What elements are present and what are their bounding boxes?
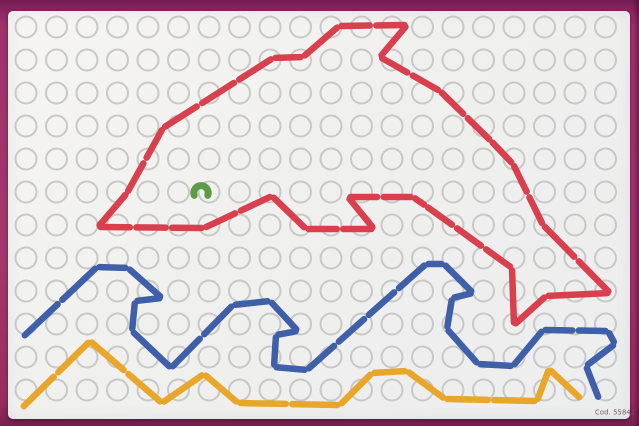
hole bbox=[321, 50, 342, 71]
hole bbox=[46, 248, 67, 269]
hole bbox=[382, 83, 403, 104]
hole bbox=[473, 50, 494, 71]
hole bbox=[199, 149, 220, 170]
hole bbox=[107, 17, 128, 38]
wave-yellow bbox=[24, 343, 579, 407]
hole bbox=[382, 314, 403, 335]
hole bbox=[107, 50, 128, 71]
hole bbox=[382, 347, 403, 368]
hole bbox=[290, 281, 311, 302]
hole bbox=[290, 83, 311, 104]
hole bbox=[138, 314, 159, 335]
hole bbox=[46, 149, 67, 170]
hole bbox=[595, 215, 616, 236]
hole bbox=[321, 149, 342, 170]
hole bbox=[229, 314, 250, 335]
hole bbox=[229, 50, 250, 71]
hole bbox=[534, 347, 555, 368]
hole bbox=[77, 248, 98, 269]
hole bbox=[382, 380, 403, 401]
hole bbox=[168, 281, 189, 302]
hole bbox=[351, 149, 372, 170]
hole bbox=[595, 116, 616, 137]
stitch-segment bbox=[446, 266, 471, 291]
hole bbox=[229, 149, 250, 170]
stitch-segment bbox=[276, 367, 304, 370]
stitch-art bbox=[0, 0, 639, 426]
hole bbox=[260, 149, 281, 170]
hole bbox=[321, 116, 342, 137]
hole bbox=[107, 83, 128, 104]
hole bbox=[412, 149, 433, 170]
hole bbox=[16, 116, 37, 137]
hole-grid bbox=[16, 17, 617, 401]
hole bbox=[382, 215, 403, 236]
hole bbox=[565, 215, 586, 236]
hole bbox=[107, 281, 128, 302]
hole bbox=[534, 116, 555, 137]
hole bbox=[290, 17, 311, 38]
hole bbox=[595, 83, 616, 104]
hole bbox=[77, 50, 98, 71]
hole bbox=[412, 281, 433, 302]
hole bbox=[412, 17, 433, 38]
hole bbox=[473, 314, 494, 335]
card-caption: Cod. 55842 bbox=[595, 409, 635, 417]
stitch-segment bbox=[447, 300, 451, 326]
stitch-segment bbox=[493, 143, 512, 162]
hole bbox=[321, 83, 342, 104]
hole bbox=[290, 182, 311, 203]
stitch-segment bbox=[514, 166, 542, 223]
hole bbox=[565, 182, 586, 203]
hole bbox=[351, 116, 372, 137]
hole bbox=[138, 248, 159, 269]
hole bbox=[595, 17, 616, 38]
hole bbox=[321, 215, 342, 236]
dolphin-eye bbox=[194, 186, 208, 196]
hole bbox=[565, 149, 586, 170]
stitch-segment bbox=[548, 293, 607, 296]
hole bbox=[16, 347, 37, 368]
hole bbox=[16, 248, 37, 269]
hole bbox=[473, 83, 494, 104]
hole bbox=[138, 50, 159, 71]
hole bbox=[168, 17, 189, 38]
hole bbox=[229, 182, 250, 203]
hole bbox=[290, 116, 311, 137]
hole bbox=[565, 116, 586, 137]
hole bbox=[534, 248, 555, 269]
stitch-segment bbox=[447, 399, 534, 401]
hole bbox=[138, 83, 159, 104]
hole bbox=[565, 17, 586, 38]
hole bbox=[412, 116, 433, 137]
hole bbox=[351, 248, 372, 269]
stitch-segment bbox=[275, 57, 300, 58]
hole bbox=[46, 215, 67, 236]
hole bbox=[534, 50, 555, 71]
hole bbox=[443, 149, 464, 170]
stitch-segment bbox=[99, 267, 125, 268]
hole bbox=[199, 347, 220, 368]
hole bbox=[534, 83, 555, 104]
stitch-segment bbox=[374, 371, 404, 373]
stitch-segment bbox=[512, 270, 514, 322]
hole bbox=[46, 182, 67, 203]
hole bbox=[473, 215, 494, 236]
hole bbox=[565, 50, 586, 71]
hole bbox=[199, 116, 220, 137]
hole bbox=[473, 149, 494, 170]
stitch-segment bbox=[137, 298, 159, 300]
hole bbox=[382, 149, 403, 170]
hole bbox=[290, 380, 311, 401]
hole bbox=[138, 17, 159, 38]
hole bbox=[46, 116, 67, 137]
hole bbox=[46, 83, 67, 104]
stitch-segment bbox=[415, 198, 424, 204]
hole bbox=[321, 281, 342, 302]
hole bbox=[321, 248, 342, 269]
wave-blue bbox=[25, 264, 614, 397]
hole bbox=[382, 116, 403, 137]
hole bbox=[504, 215, 525, 236]
hole bbox=[595, 182, 616, 203]
stitch-segment bbox=[545, 330, 605, 331]
hole bbox=[595, 248, 616, 269]
hole bbox=[290, 248, 311, 269]
hole bbox=[534, 149, 555, 170]
hole bbox=[443, 17, 464, 38]
hole bbox=[473, 182, 494, 203]
hole bbox=[229, 281, 250, 302]
hole bbox=[16, 182, 37, 203]
hole bbox=[412, 347, 433, 368]
hole bbox=[351, 83, 372, 104]
hole bbox=[260, 116, 281, 137]
hole bbox=[260, 314, 281, 335]
hole bbox=[77, 380, 98, 401]
hole bbox=[321, 380, 342, 401]
stitch-segment bbox=[240, 403, 337, 405]
stitch-segment bbox=[454, 294, 470, 298]
hole bbox=[565, 281, 586, 302]
hole bbox=[229, 347, 250, 368]
hole bbox=[168, 50, 189, 71]
hole bbox=[321, 182, 342, 203]
hole bbox=[290, 149, 311, 170]
stitch-segment bbox=[382, 58, 438, 90]
hole bbox=[290, 347, 311, 368]
hole bbox=[199, 50, 220, 71]
stitch-segment bbox=[428, 207, 510, 266]
hole bbox=[199, 248, 220, 269]
hole bbox=[443, 347, 464, 368]
hole bbox=[107, 314, 128, 335]
hole bbox=[260, 248, 281, 269]
hole bbox=[534, 182, 555, 203]
hole bbox=[565, 83, 586, 104]
hole bbox=[351, 281, 372, 302]
hole bbox=[138, 182, 159, 203]
stitch-segment bbox=[100, 195, 126, 225]
stitch-segment bbox=[480, 364, 510, 366]
hole bbox=[16, 83, 37, 104]
hole bbox=[443, 50, 464, 71]
hole bbox=[16, 17, 37, 38]
hole bbox=[504, 83, 525, 104]
stitch-segment bbox=[341, 25, 404, 26]
stitch-segment bbox=[587, 368, 598, 396]
stitch-segment bbox=[235, 301, 267, 304]
stitch-segment bbox=[274, 337, 276, 364]
hole bbox=[107, 116, 128, 137]
hole bbox=[107, 380, 128, 401]
hole bbox=[565, 347, 586, 368]
hole bbox=[260, 380, 281, 401]
hole bbox=[77, 215, 98, 236]
stitch-segment bbox=[382, 27, 406, 55]
hole bbox=[382, 248, 403, 269]
hole bbox=[504, 50, 525, 71]
hole bbox=[16, 149, 37, 170]
stitch-segment bbox=[278, 331, 295, 334]
hole bbox=[107, 149, 128, 170]
hole bbox=[168, 83, 189, 104]
hole bbox=[168, 248, 189, 269]
hole bbox=[16, 50, 37, 71]
hole bbox=[138, 116, 159, 137]
stitch-segment bbox=[206, 376, 236, 402]
photo-of-lacing-card: Cod. 55842 bbox=[0, 0, 639, 426]
hole bbox=[77, 83, 98, 104]
hole bbox=[443, 182, 464, 203]
hole bbox=[46, 50, 67, 71]
hole bbox=[260, 281, 281, 302]
hole bbox=[168, 182, 189, 203]
hole bbox=[595, 50, 616, 71]
hole bbox=[199, 281, 220, 302]
hole bbox=[77, 116, 98, 137]
hole bbox=[351, 50, 372, 71]
hole bbox=[229, 17, 250, 38]
hole bbox=[595, 149, 616, 170]
hole bbox=[412, 314, 433, 335]
stitch-segment bbox=[516, 298, 544, 324]
hole bbox=[260, 215, 281, 236]
stitch-segment bbox=[100, 227, 201, 228]
hole bbox=[229, 248, 250, 269]
stitch-segment bbox=[609, 333, 614, 342]
hole bbox=[504, 17, 525, 38]
hole bbox=[504, 116, 525, 137]
hole bbox=[229, 116, 250, 137]
hole bbox=[443, 116, 464, 137]
hole bbox=[77, 149, 98, 170]
hole bbox=[321, 314, 342, 335]
hole bbox=[473, 17, 494, 38]
hole bbox=[16, 215, 37, 236]
hole bbox=[351, 347, 372, 368]
hole bbox=[412, 50, 433, 71]
hole bbox=[199, 17, 220, 38]
hole bbox=[46, 17, 67, 38]
hole bbox=[77, 17, 98, 38]
hole bbox=[412, 215, 433, 236]
hole bbox=[534, 17, 555, 38]
hole bbox=[260, 17, 281, 38]
hole bbox=[168, 149, 189, 170]
hole bbox=[77, 314, 98, 335]
hole bbox=[473, 281, 494, 302]
stitch-segment bbox=[164, 375, 202, 401]
stitch-segment bbox=[538, 371, 548, 398]
hole bbox=[168, 314, 189, 335]
hole bbox=[260, 83, 281, 104]
hole bbox=[77, 182, 98, 203]
stitch-segment bbox=[132, 303, 135, 328]
hole bbox=[16, 281, 37, 302]
